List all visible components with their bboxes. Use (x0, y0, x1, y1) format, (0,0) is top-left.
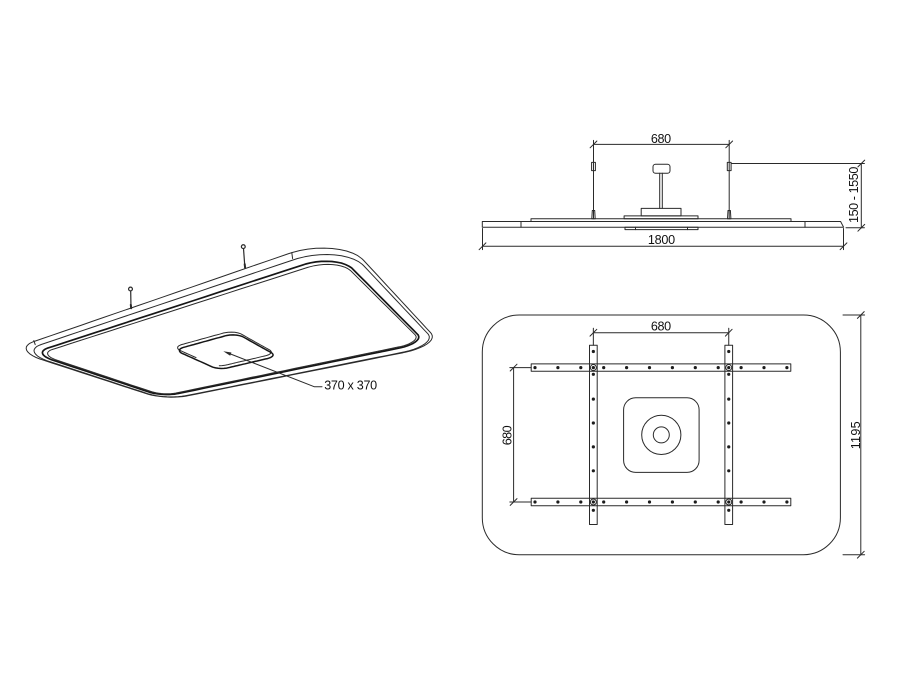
svg-text:1195: 1195 (849, 421, 863, 449)
svg-text:680: 680 (501, 425, 515, 445)
svg-text:150 - 1550: 150 - 1550 (847, 167, 861, 223)
svg-text:1800: 1800 (648, 233, 675, 247)
svg-text:680: 680 (651, 320, 671, 334)
svg-text:680: 680 (651, 132, 671, 146)
svg-text:370 x 370: 370 x 370 (324, 378, 377, 392)
